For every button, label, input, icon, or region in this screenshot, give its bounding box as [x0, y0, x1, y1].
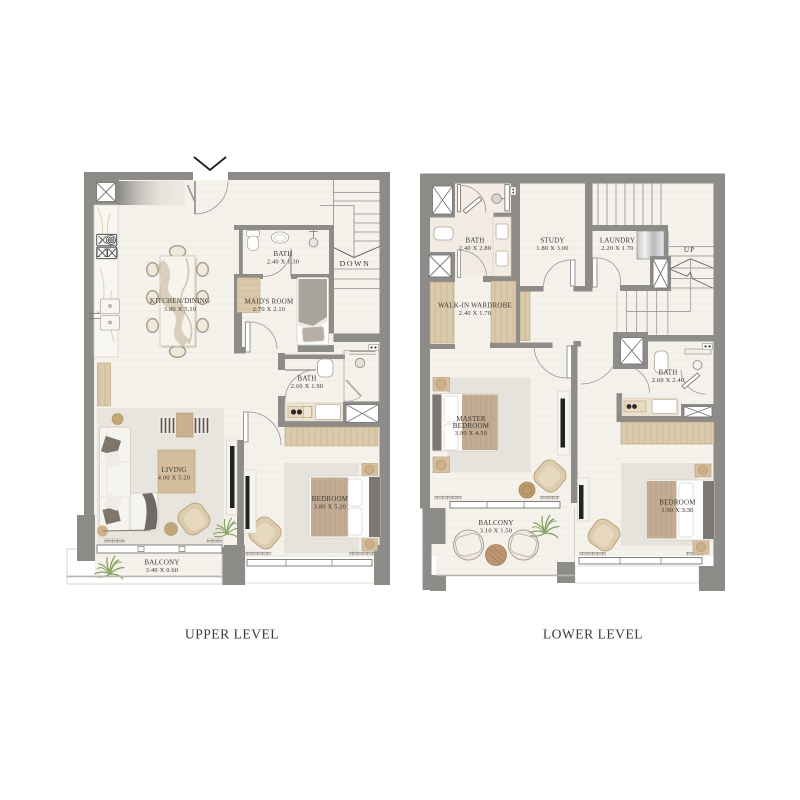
svg-text:3.90 X 4.50: 3.90 X 4.50: [455, 430, 487, 437]
svg-text:LIVING: LIVING: [161, 466, 186, 474]
svg-text:1.80 X 3.00: 1.80 X 3.00: [536, 245, 568, 252]
svg-text:2.70 X 2.10: 2.70 X 2.10: [253, 306, 285, 313]
svg-text:2.40 X 2.80: 2.40 X 2.80: [459, 245, 491, 252]
svg-text:BEDROOM: BEDROOM: [453, 422, 490, 430]
svg-text:2.60 X 2.40: 2.60 X 2.40: [652, 377, 684, 384]
svg-text:3.40 X 0.60: 3.40 X 0.60: [146, 567, 178, 574]
svg-text:MAID'S ROOM: MAID'S ROOM: [245, 298, 294, 306]
svg-text:3.90 X 3.30: 3.90 X 3.30: [661, 507, 693, 514]
svg-text:LOWER LEVEL: LOWER LEVEL: [543, 627, 643, 642]
svg-text:2.40 X 1.30: 2.40 X 1.30: [267, 259, 299, 266]
svg-text:2.20 X 1.70: 2.20 X 1.70: [601, 245, 633, 252]
svg-text:BATH: BATH: [658, 369, 677, 377]
svg-text:STUDY: STUDY: [540, 237, 564, 245]
svg-text:BEDROOM: BEDROOM: [312, 495, 349, 503]
svg-text:2.40 X 1.70: 2.40 X 1.70: [459, 310, 491, 317]
svg-text:WALK-IN WARDROBE: WALK-IN WARDROBE: [438, 302, 512, 310]
svg-text:BATH: BATH: [465, 237, 484, 245]
svg-text:BALCONY: BALCONY: [144, 559, 179, 567]
svg-text:BALCONY: BALCONY: [478, 519, 513, 527]
svg-text:4.00 X 5.20: 4.00 X 5.20: [158, 475, 190, 482]
svg-text:3.80 X 5.10: 3.80 X 5.10: [164, 306, 196, 313]
svg-text:UPPER LEVEL: UPPER LEVEL: [185, 627, 279, 642]
svg-text:BATH: BATH: [297, 375, 316, 383]
svg-text:2.60 X 1.90: 2.60 X 1.90: [291, 383, 323, 390]
svg-text:BATH: BATH: [273, 250, 292, 258]
svg-text:KITCHEN/DINING: KITCHEN/DINING: [150, 297, 210, 305]
svg-text:LAUNDRY: LAUNDRY: [600, 237, 635, 245]
svg-text:DOWN: DOWN: [340, 259, 371, 268]
svg-text:3.10 X 1.50: 3.10 X 1.50: [480, 528, 512, 535]
svg-text:3.80 X 5.20: 3.80 X 5.20: [314, 504, 346, 511]
svg-text:UP: UP: [684, 246, 695, 254]
svg-text:BEDROOM: BEDROOM: [659, 499, 696, 507]
